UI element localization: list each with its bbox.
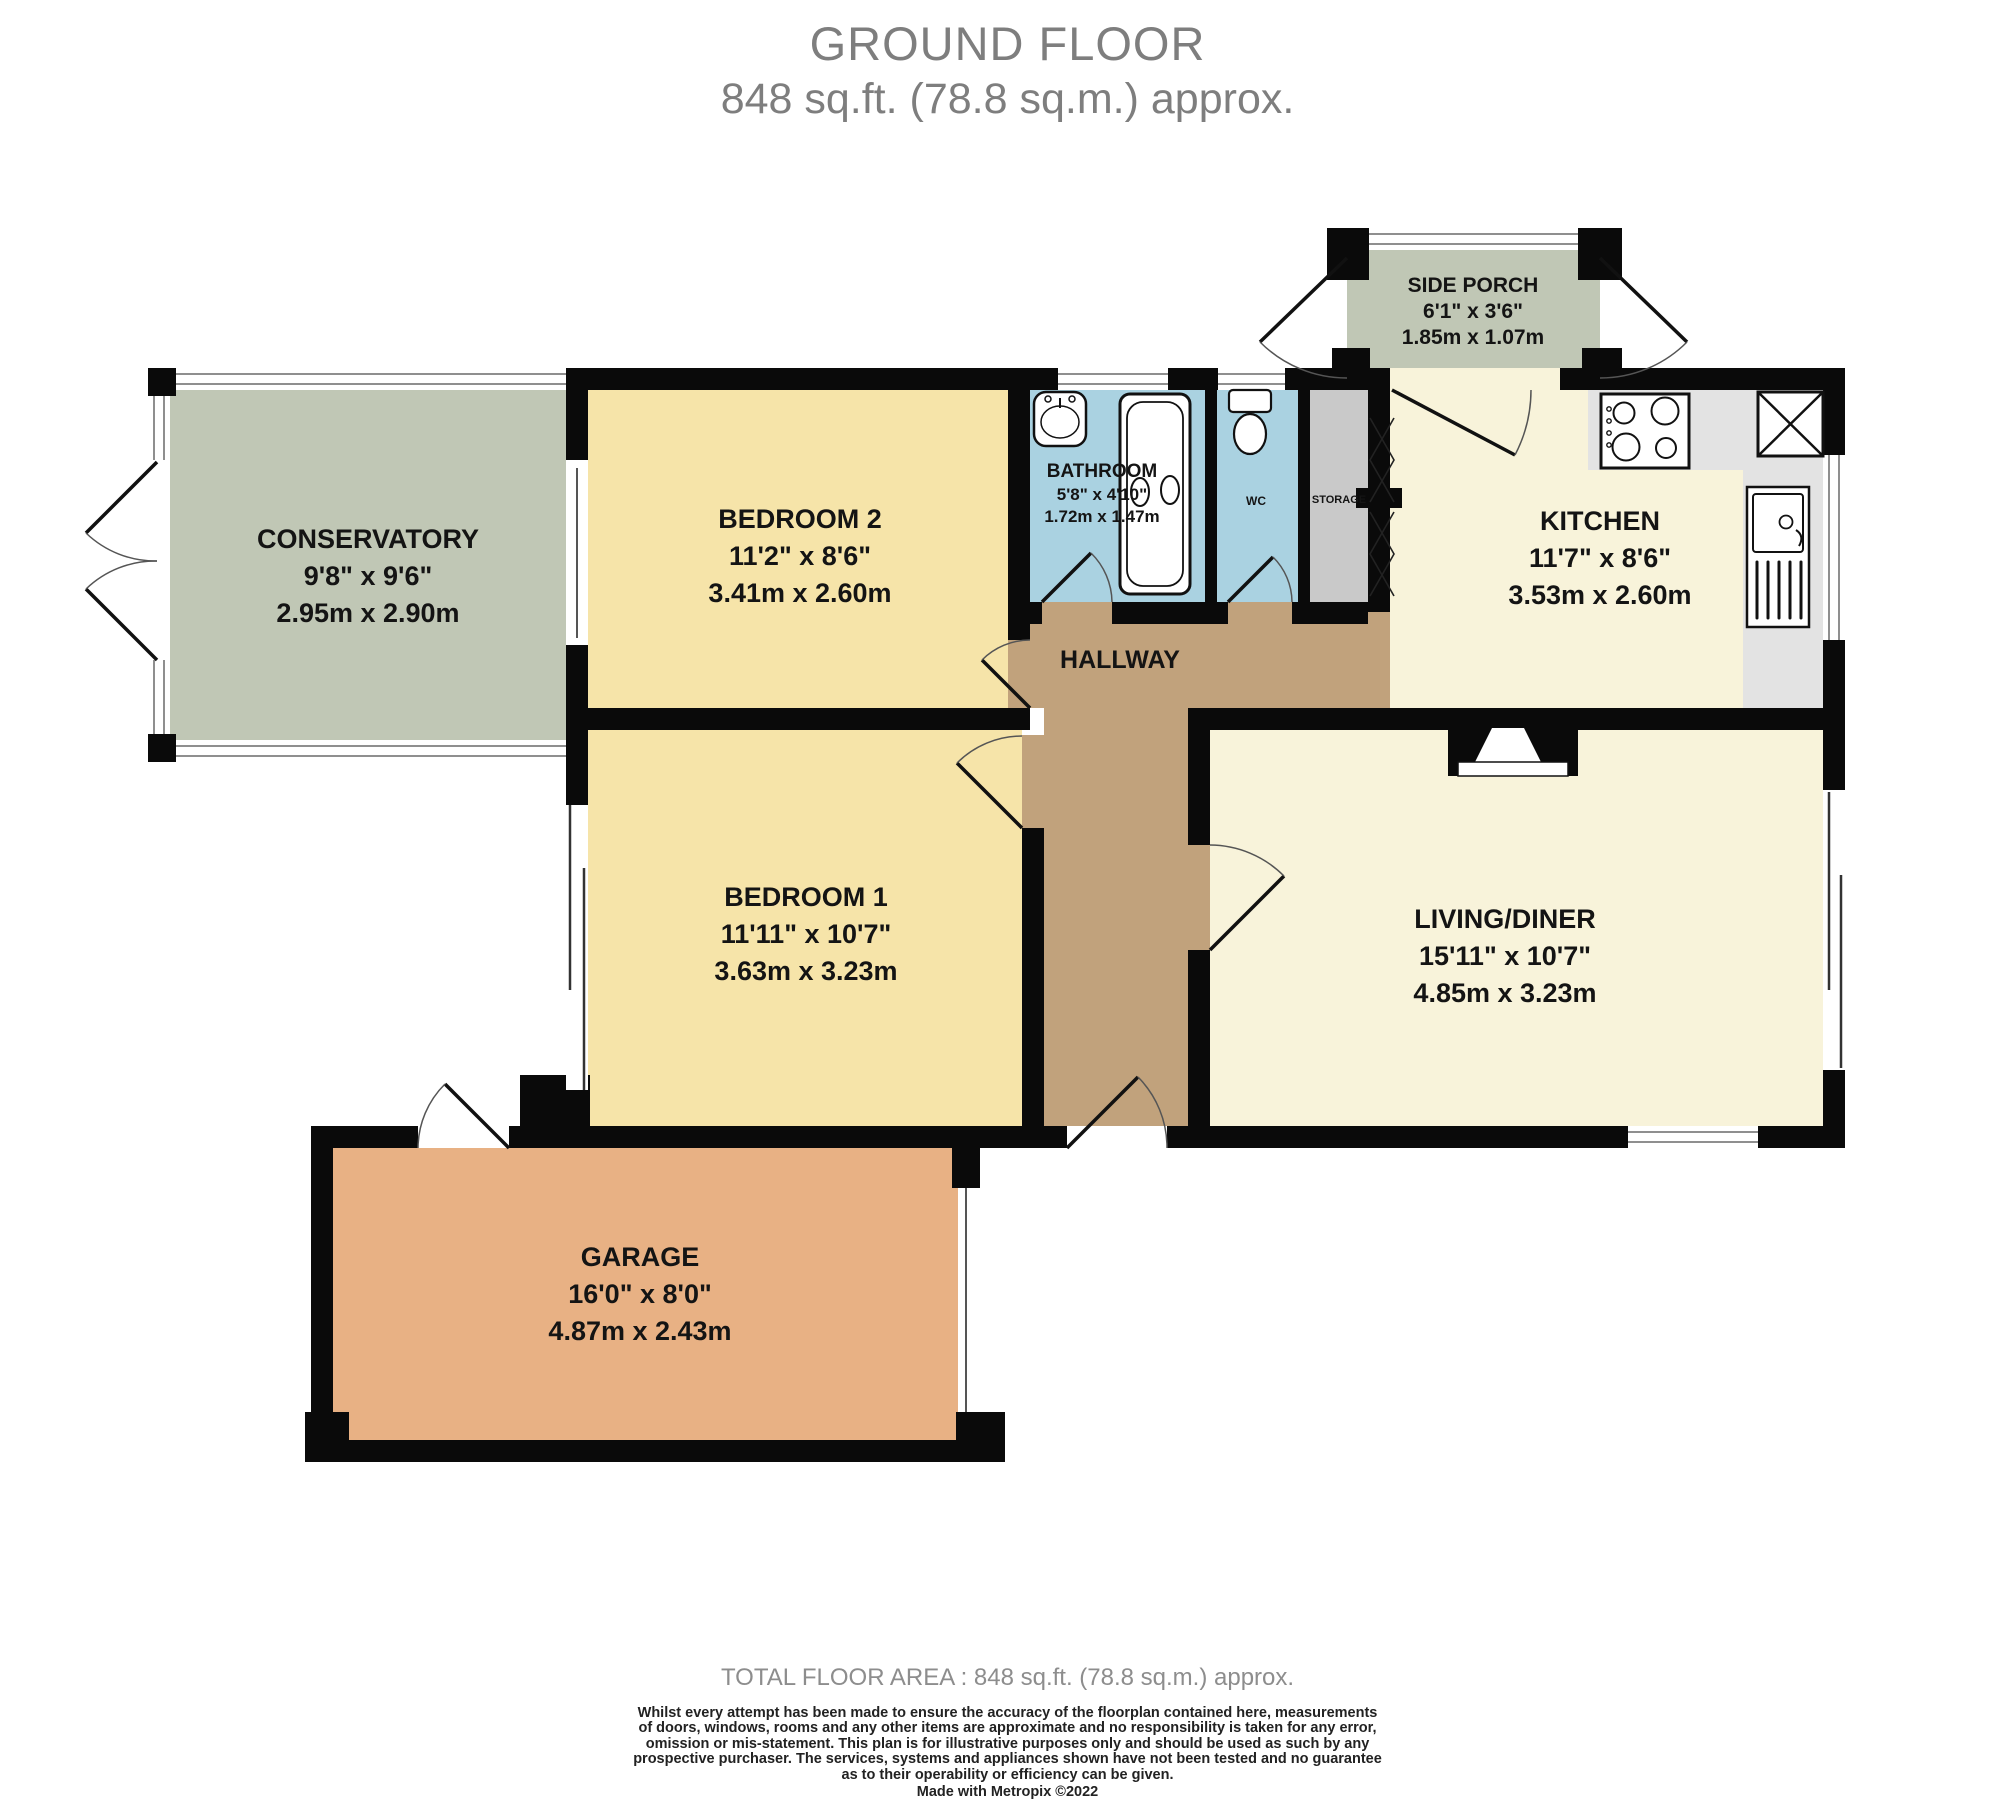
garage-bottom-wall: [311, 1440, 1005, 1462]
garage-metric: 4.87m x 2.43m: [548, 1316, 731, 1346]
conservatory-post-topleft: [148, 368, 176, 396]
living-diner-label: LIVING/DINER: [1414, 904, 1596, 934]
kitchen-metric: 3.53m x 2.60m: [1508, 580, 1691, 610]
wc-label: WC: [1246, 494, 1266, 508]
bath-bottom-wall-2: [1112, 602, 1228, 624]
bathroom-window: [1058, 368, 1168, 390]
garage-side-door: [418, 1084, 509, 1148]
top-wall-f: [1560, 368, 1600, 390]
wc-window: [1218, 368, 1285, 390]
bedroom1-right-wall: [1022, 828, 1044, 1148]
kitchen-sink-icon: [1747, 487, 1809, 627]
living-bottom-window: [1628, 1126, 1758, 1148]
kitchen-label: KITCHEN: [1540, 506, 1660, 536]
kitchen-right-window: [1823, 455, 1845, 640]
bottom-wall-d: [1758, 1126, 1845, 1148]
bedroom1-imperial: 11'11" x 10'7": [721, 919, 892, 949]
conservatory-french-door-top: [86, 462, 157, 561]
garage-label: GARAGE: [581, 1242, 700, 1272]
kitchen-unit-icon: [1758, 392, 1823, 456]
hallway-passage-kitchen: [1368, 612, 1390, 708]
conservatory-imperial: 9'8" x 9'6": [304, 561, 433, 591]
conservatory-post-bottomleft: [148, 734, 176, 762]
bedroom1-left-window: [566, 805, 588, 1090]
top-wall-d: [1600, 368, 1845, 390]
living-diner-metric: 4.85m x 3.23m: [1413, 978, 1596, 1008]
living-diner-imperial: 15'11" x 10'7": [1419, 941, 1591, 971]
garage-left-wall: [311, 1126, 333, 1462]
fireplace-hearth: [1458, 762, 1568, 776]
right-wall-1: [1823, 368, 1845, 455]
living-left-wall-2: [1188, 950, 1210, 1148]
hob-icon: [1601, 394, 1689, 468]
garage-corner-bl: [305, 1412, 349, 1462]
side-porch-metric: 1.85m x 1.07m: [1402, 326, 1544, 349]
conservatory-left-glazing-lower: [148, 660, 170, 734]
bedroom1-label: BEDROOM 1: [724, 882, 888, 912]
bedroom2-imperial: 11'2" x 8'6": [729, 541, 871, 571]
bathroom-label: BATHROOM: [1047, 461, 1157, 482]
conservatory-label: CONSERVATORY: [257, 524, 479, 554]
disclaimer-line: Whilst every attempt has been made to en…: [0, 1706, 2015, 1721]
porch-window: [1369, 228, 1578, 250]
disclaimer-text: Whilst every attempt has been made to en…: [0, 1706, 2015, 1783]
side-porch-label: SIDE PORCH: [1408, 274, 1539, 297]
wc-storage-divider: [1298, 390, 1310, 602]
right-wall-2: [1823, 640, 1845, 790]
conservatory-top-glazing: [176, 368, 566, 390]
bathroom-imperial: 5'8" x 4'10": [1057, 485, 1147, 504]
footer: TOTAL FLOOR AREA : 848 sq.ft. (78.8 sq.m…: [0, 1664, 2015, 1800]
conservatory-metric: 2.95m x 2.90m: [276, 598, 459, 628]
wc-door-gap-floor: [1228, 602, 1292, 624]
conservatory-bottom-glazing: [176, 740, 566, 762]
garage-imperial: 16'0" x 8'0": [568, 1279, 712, 1309]
bath-bottom-wall-3: [1292, 602, 1368, 624]
garage-corner-tr: [952, 1126, 980, 1188]
bedroom2-label: BEDROOM 2: [718, 504, 882, 534]
porch-base-left: [1332, 348, 1370, 368]
bathroom-metric: 1.72m x 1.47m: [1044, 507, 1159, 526]
living-left-wall-1: [1188, 730, 1210, 845]
storage-label: STORAGE: [1312, 494, 1366, 506]
top-wall-b: [1168, 368, 1218, 390]
bathroom-door-gap-floor: [1042, 602, 1112, 624]
conservatory-bedroom2-window: [566, 460, 588, 645]
bedroom1-door-gap-floor: [1022, 735, 1044, 828]
bedroom2-right-wall: [1008, 390, 1030, 640]
porch-base-right: [1582, 348, 1622, 368]
disclaimer-line: of doors, windows, rooms and any other i…: [0, 1721, 2015, 1736]
top-wall-c: [1285, 368, 1347, 390]
total-floor-area: TOTAL FLOOR AREA : 848 sq.ft. (78.8 sq.m…: [0, 1664, 2015, 1692]
mid-wall-bedrooms: [566, 708, 1030, 730]
floorplan-canvas: CONSERVATORY 9'8" x 9'6" 2.95m x 2.90m B…: [0, 0, 2015, 1800]
living-right-window: [1823, 790, 1845, 1070]
disclaimer-line: omission or mis-statement. This plan is …: [0, 1737, 2015, 1752]
conservatory-french-door-bottom: [86, 561, 157, 660]
conservatory-left-glazing-upper: [148, 396, 170, 460]
top-wall-e: [1347, 368, 1390, 390]
kitchen-imperial: 11'7" x 8'6": [1529, 543, 1671, 573]
bathroom-sink-icon: [1034, 392, 1086, 446]
hallway-area-vertical: [1044, 708, 1188, 1126]
bath-bottom-wall-1: [1030, 602, 1042, 624]
main-left-wall-1: [566, 368, 588, 460]
mid-wall-living-top: [1188, 708, 1845, 730]
top-wall-a: [566, 368, 1058, 390]
bedroom1-metric: 3.63m x 3.23m: [714, 956, 897, 986]
bottom-wall-c: [1167, 1126, 1628, 1148]
bottom-wall-b: [509, 1126, 1067, 1148]
disclaimer-line: as to their operability or efficiency ca…: [0, 1768, 2015, 1783]
bathroom-wc-divider: [1205, 390, 1217, 602]
living-door-gap-floor: [1188, 845, 1210, 950]
hallway-label: HALLWAY: [1060, 646, 1180, 674]
porch-door-gap-floor: [1390, 368, 1560, 390]
disclaimer-line: prospective purchaser. The services, sys…: [0, 1752, 2015, 1767]
garage-corner-br: [956, 1412, 1005, 1462]
bedroom2-metric: 3.41m x 2.60m: [708, 578, 891, 608]
room-fills: [170, 250, 1823, 1440]
side-porch-imperial: 6'1" x 3'6": [1423, 300, 1523, 323]
metropix-credit: Made with Metropix ©2022: [0, 1784, 2015, 1800]
